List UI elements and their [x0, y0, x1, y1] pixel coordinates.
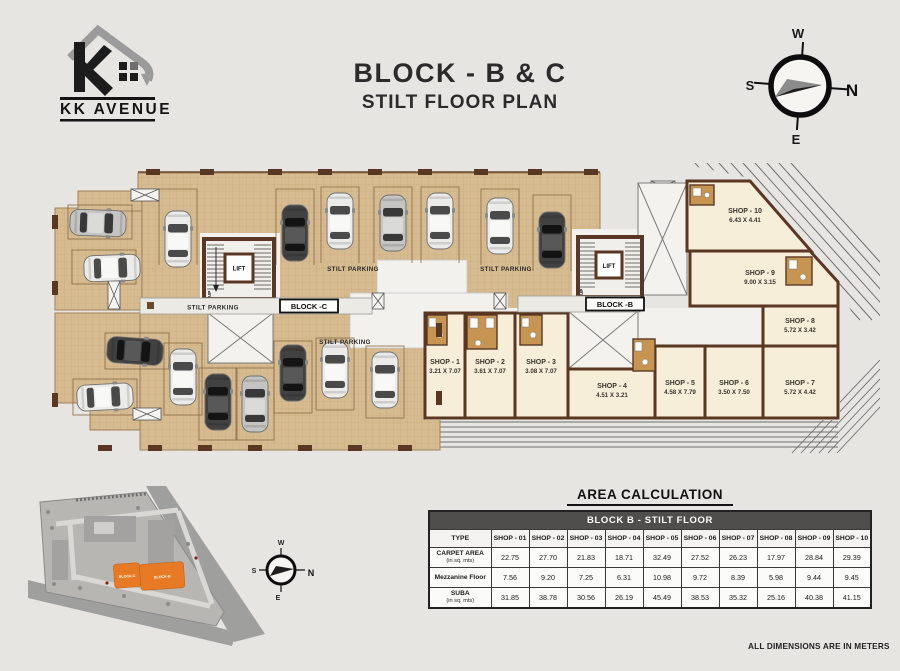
table-row: SUBA(in sq. mts)31.8538.7830.5626.1945.4…	[429, 588, 871, 609]
site-key-plan: BLOCK-C BLOCK-B W S N E	[28, 484, 330, 648]
lift-label: LIFT	[603, 264, 616, 270]
car-icon	[203, 374, 233, 430]
car-icon	[370, 352, 400, 408]
col-header-shop: SHOP - 04	[605, 530, 643, 548]
compass-e: E	[792, 132, 801, 147]
area-value: 38.53	[681, 588, 719, 609]
svg-text:3.08 X 7.07: 3.08 X 7.07	[525, 368, 557, 375]
area-value: 28.84	[795, 548, 833, 568]
svg-text:SHOP - 3: SHOP - 3	[526, 359, 556, 366]
svg-text:SHOP - 7: SHOP - 7	[785, 380, 815, 387]
area-value: 41.15	[833, 588, 871, 609]
drawing-title: BLOCK - B & C STILT FLOOR PLAN	[320, 58, 600, 114]
car-icon	[76, 381, 133, 414]
car-icon	[485, 198, 515, 254]
compass-n: N	[846, 81, 858, 100]
svg-text:4.58 X 7.79: 4.58 X 7.79	[664, 389, 696, 396]
area-value: 18.71	[605, 548, 643, 568]
car-icon	[280, 205, 310, 261]
svg-text:SHOP - 10: SHOP - 10	[728, 208, 762, 215]
stair-core-b: LIFT UP	[578, 237, 642, 297]
table-subtitle: BLOCK B - STILT FLOOR	[429, 511, 871, 530]
area-value: 27.70	[529, 548, 567, 568]
area-value: 30.56	[567, 588, 605, 609]
svg-text:SHOP - 6: SHOP - 6	[719, 380, 749, 387]
area-value: 9.72	[681, 568, 719, 588]
area-value: 17.97	[757, 548, 795, 568]
col-header-shop: SHOP - 09	[795, 530, 833, 548]
car-icon	[106, 334, 164, 368]
area-table-title: AREA CALCULATION	[567, 487, 733, 506]
svg-text:4.51 X 3.21: 4.51 X 3.21	[596, 392, 628, 399]
car-icon	[69, 207, 126, 239]
area-value: 26.23	[719, 548, 757, 568]
svg-text:SHOP - 1: SHOP - 1	[430, 359, 460, 366]
site-compass-n: N	[308, 568, 315, 578]
dimensions-note: ALL DIMENSIONS ARE IN METERS	[748, 642, 893, 651]
svg-text:SHOP - 8: SHOP - 8	[785, 318, 815, 325]
svg-text:3.50 X 7.50: 3.50 X 7.50	[718, 389, 750, 396]
area-value: 9.45	[833, 568, 871, 588]
col-header-shop: SHOP - 05	[643, 530, 681, 548]
col-header-shop: SHOP - 08	[757, 530, 795, 548]
area-value: 10.98	[643, 568, 681, 588]
svg-text:5.72 X 4.42: 5.72 X 4.42	[784, 389, 816, 396]
col-header-type: TYPE	[429, 530, 491, 548]
stilt-parking-strip-b: BLOCK -B	[518, 296, 644, 312]
svg-text:9.00 X 3.15: 9.00 X 3.15	[744, 279, 776, 286]
row-label: Mezzanine Floor	[429, 568, 491, 588]
area-value: 29.39	[833, 548, 871, 568]
table-row: CARPET AREA(in sq. mts)22.7527.7021.8318…	[429, 548, 871, 568]
kk-avenue-logo: KK AVENUE	[40, 20, 190, 124]
area-value: 40.38	[795, 588, 833, 609]
highlighted-blocks: BLOCK-C BLOCK-B	[113, 560, 185, 593]
title-line-2: STILT FLOOR PLAN	[320, 92, 600, 114]
stilt-parking-strip-c: STILT PARKING BLOCK -C	[140, 298, 372, 314]
row-label: CARPET AREA(in sq. mts)	[429, 548, 491, 568]
up-label: UP	[579, 289, 584, 295]
svg-text:3.21 X 7.07: 3.21 X 7.07	[429, 368, 461, 375]
col-header-shop: SHOP - 07	[719, 530, 757, 548]
area-value: 35.32	[719, 588, 757, 609]
col-header-shop: SHOP - 02	[529, 530, 567, 548]
svg-text:3.61 X 7.07: 3.61 X 7.07	[474, 368, 506, 375]
area-value: 6.31	[605, 568, 643, 588]
car-icon	[83, 252, 140, 284]
car-icon	[163, 211, 193, 267]
col-header-shop: SHOP - 06	[681, 530, 719, 548]
car-icon	[320, 342, 350, 398]
title-line-1: BLOCK - B & C	[320, 58, 600, 89]
stilt-parking-label: STILT PARKING	[319, 339, 371, 346]
lift-label: LIFT	[233, 267, 246, 273]
area-value: 27.52	[681, 548, 719, 568]
car-icon	[325, 193, 355, 249]
stilt-parking-label: STILT PARKING	[327, 266, 379, 273]
area-value: 38.78	[529, 588, 567, 609]
table-row: Mezzanine Floor7.569.207.256.3110.989.72…	[429, 568, 871, 588]
car-icon	[425, 193, 455, 249]
area-value: 21.83	[567, 548, 605, 568]
area-calculation-table: BLOCK B - STILT FLOOR TYPE SHOP - 01SHOP…	[428, 510, 872, 609]
area-value: 9.20	[529, 568, 567, 588]
site-compass: W S N E	[252, 540, 315, 602]
area-value: 26.19	[605, 588, 643, 609]
area-value: 7.56	[491, 568, 529, 588]
site-compass-e: E	[276, 595, 281, 602]
col-header-shop: SHOP - 03	[567, 530, 605, 548]
svg-text:SHOP - 2: SHOP - 2	[475, 359, 505, 366]
car-icon	[278, 345, 308, 401]
floor-plan-sheet: KK AVENUE BLOCK - B & C STILT FLOOR PLAN…	[0, 0, 900, 671]
site-compass-s: S	[252, 568, 257, 575]
row-label: SUBA(in sq. mts)	[429, 588, 491, 609]
area-value: 22.75	[491, 548, 529, 568]
house-roof-icon	[70, 30, 153, 96]
car-icon	[168, 349, 198, 405]
svg-text:6.43 X 4.41: 6.43 X 4.41	[729, 217, 761, 224]
svg-text:SHOP - 9: SHOP - 9	[745, 270, 775, 277]
compass-s: S	[746, 78, 755, 93]
car-icon	[240, 376, 270, 432]
compass-rose: W S N E	[742, 26, 862, 148]
svg-text:SHOP - 4: SHOP - 4	[597, 383, 627, 390]
logo-rule-top	[60, 97, 155, 100]
logo-rule-bottom	[60, 119, 155, 122]
col-header-shop: SHOP - 01	[491, 530, 529, 548]
area-value: 8.39	[719, 568, 757, 588]
svg-text:SHOP - 5: SHOP - 5	[665, 380, 695, 387]
area-value: 9.44	[795, 568, 833, 588]
area-value: 5.98	[757, 568, 795, 588]
stair-core-c: LIFT UP	[204, 239, 274, 299]
area-value: 31.85	[491, 588, 529, 609]
block-c-label: BLOCK -C	[291, 302, 328, 311]
compass-w: W	[792, 26, 805, 41]
stilt-parking-label: STILT PARKING	[480, 266, 532, 273]
area-value: 45.49	[643, 588, 681, 609]
site-compass-w: W	[278, 540, 285, 547]
svg-text:5.72 X 3.42: 5.72 X 3.42	[784, 327, 816, 334]
col-header-shop: SHOP - 10	[833, 530, 871, 548]
car-icon	[537, 212, 567, 268]
area-value: 7.25	[567, 568, 605, 588]
car-icon	[378, 195, 408, 251]
area-value: 25.16	[757, 588, 795, 609]
area-calculation-section: AREA CALCULATION BLOCK B - STILT FLOOR T…	[428, 486, 872, 609]
logo-text: KK AVENUE	[60, 101, 172, 118]
block-b-label: BLOCK -B	[597, 300, 633, 309]
area-value: 32.49	[643, 548, 681, 568]
stilt-floor-plan: LIFT UP LIFT UP	[50, 163, 880, 461]
up-label: UP	[207, 291, 212, 297]
stilt-parking-label: STILT PARKING	[187, 305, 239, 312]
